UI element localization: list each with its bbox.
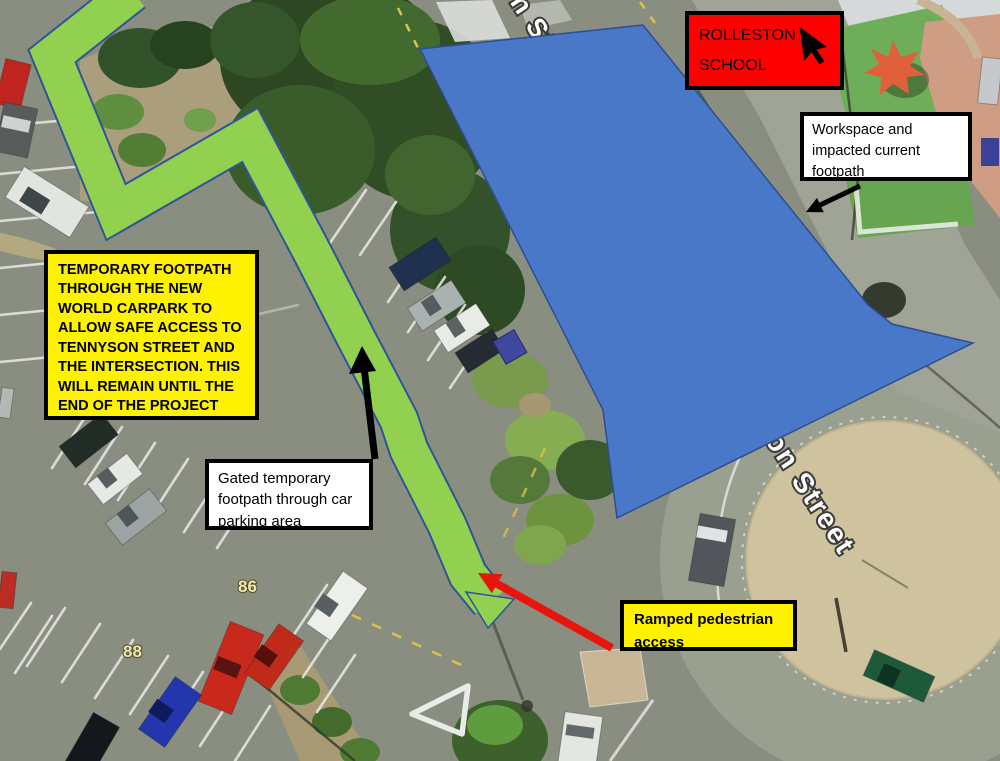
- house-number-86: 86: [238, 577, 257, 596]
- temporary-footpath-note-text: TEMPORARY FOOTPATH THROUGH THE NEW WORLD…: [58, 262, 242, 414]
- gated-footpath-note-box[interactable]: Gated temporary footpath through car par…: [205, 459, 373, 530]
- traffic-management-plan: n Str on Street 86 88 ROLLESTON SCHOOL W…: [0, 0, 1000, 761]
- ramped-access-note-box[interactable]: Ramped pedestrian access: [620, 600, 797, 651]
- ramped-access-note-text: Ramped pedestrian access: [634, 611, 773, 651]
- pedestrian-refuge: [580, 648, 648, 707]
- gated-footpath-note-text: Gated temporary footpath through car par…: [218, 470, 352, 530]
- school-label-text: ROLLESTON SCHOOL: [699, 27, 796, 74]
- mouse-cursor-icon: [794, 25, 834, 67]
- temporary-footpath-note-box[interactable]: TEMPORARY FOOTPATH THROUGH THE NEW WORLD…: [44, 250, 259, 420]
- workspace-note-text: Workspace and impacted current footpath: [812, 122, 920, 180]
- workspace-note-box[interactable]: Workspace and impacted current footpath: [800, 112, 972, 181]
- house-number-88: 88: [123, 642, 142, 661]
